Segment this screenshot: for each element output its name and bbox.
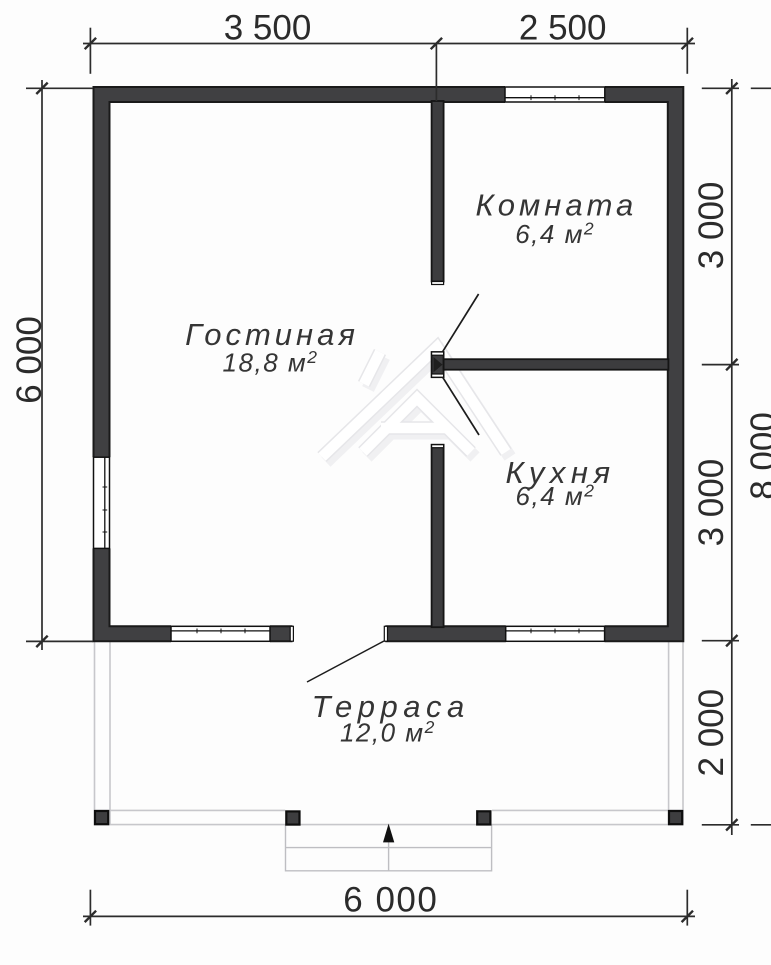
svg-text:2 000: 2 000: [692, 689, 731, 777]
svg-text:12,0 м2: 12,0 м2: [340, 717, 436, 748]
svg-text:Комната: Комната: [476, 188, 638, 223]
svg-text:3 500: 3 500: [224, 9, 312, 48]
svg-text:6,4 м2: 6,4 м2: [515, 219, 595, 250]
svg-text:2 500: 2 500: [519, 9, 607, 48]
svg-text:6,4 м2: 6,4 м2: [516, 481, 596, 512]
svg-text:6 000: 6 000: [10, 316, 49, 404]
svg-text:3 000: 3 000: [692, 459, 731, 547]
svg-text:18,8 м2: 18,8 м2: [223, 347, 319, 378]
svg-text:8 000: 8 000: [744, 412, 771, 500]
svg-text:3 000: 3 000: [692, 182, 731, 270]
svg-text:6 000: 6 000: [343, 881, 438, 920]
